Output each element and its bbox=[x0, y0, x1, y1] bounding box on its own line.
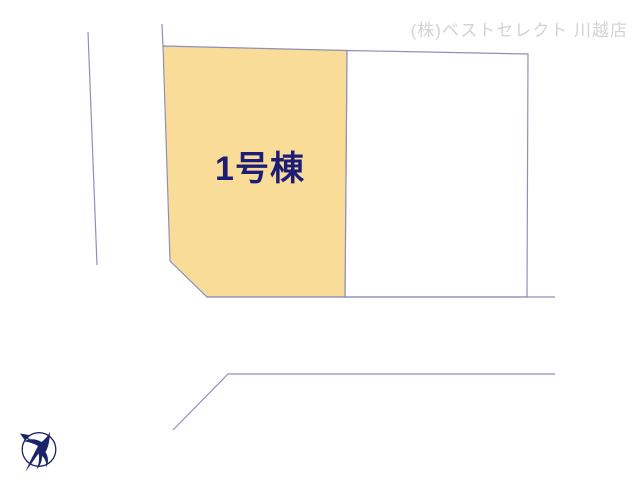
bird-silhouette bbox=[25, 432, 51, 472]
site-plan-canvas: (株)ベストセレクト 川越店 1号棟 bbox=[0, 0, 640, 480]
lot-2-parcel bbox=[345, 51, 528, 298]
company-credit-label: (株)ベストセレクト 川越店 bbox=[411, 16, 628, 41]
lot-1-label: 1号棟 bbox=[190, 149, 330, 189]
site-plan-drawing bbox=[0, 0, 640, 480]
road-edge-left-line bbox=[88, 32, 97, 265]
boundary-extension-line bbox=[162, 24, 163, 46]
road-edge-lower-line bbox=[173, 374, 555, 430]
north-arrow-bird-icon bbox=[17, 427, 61, 475]
